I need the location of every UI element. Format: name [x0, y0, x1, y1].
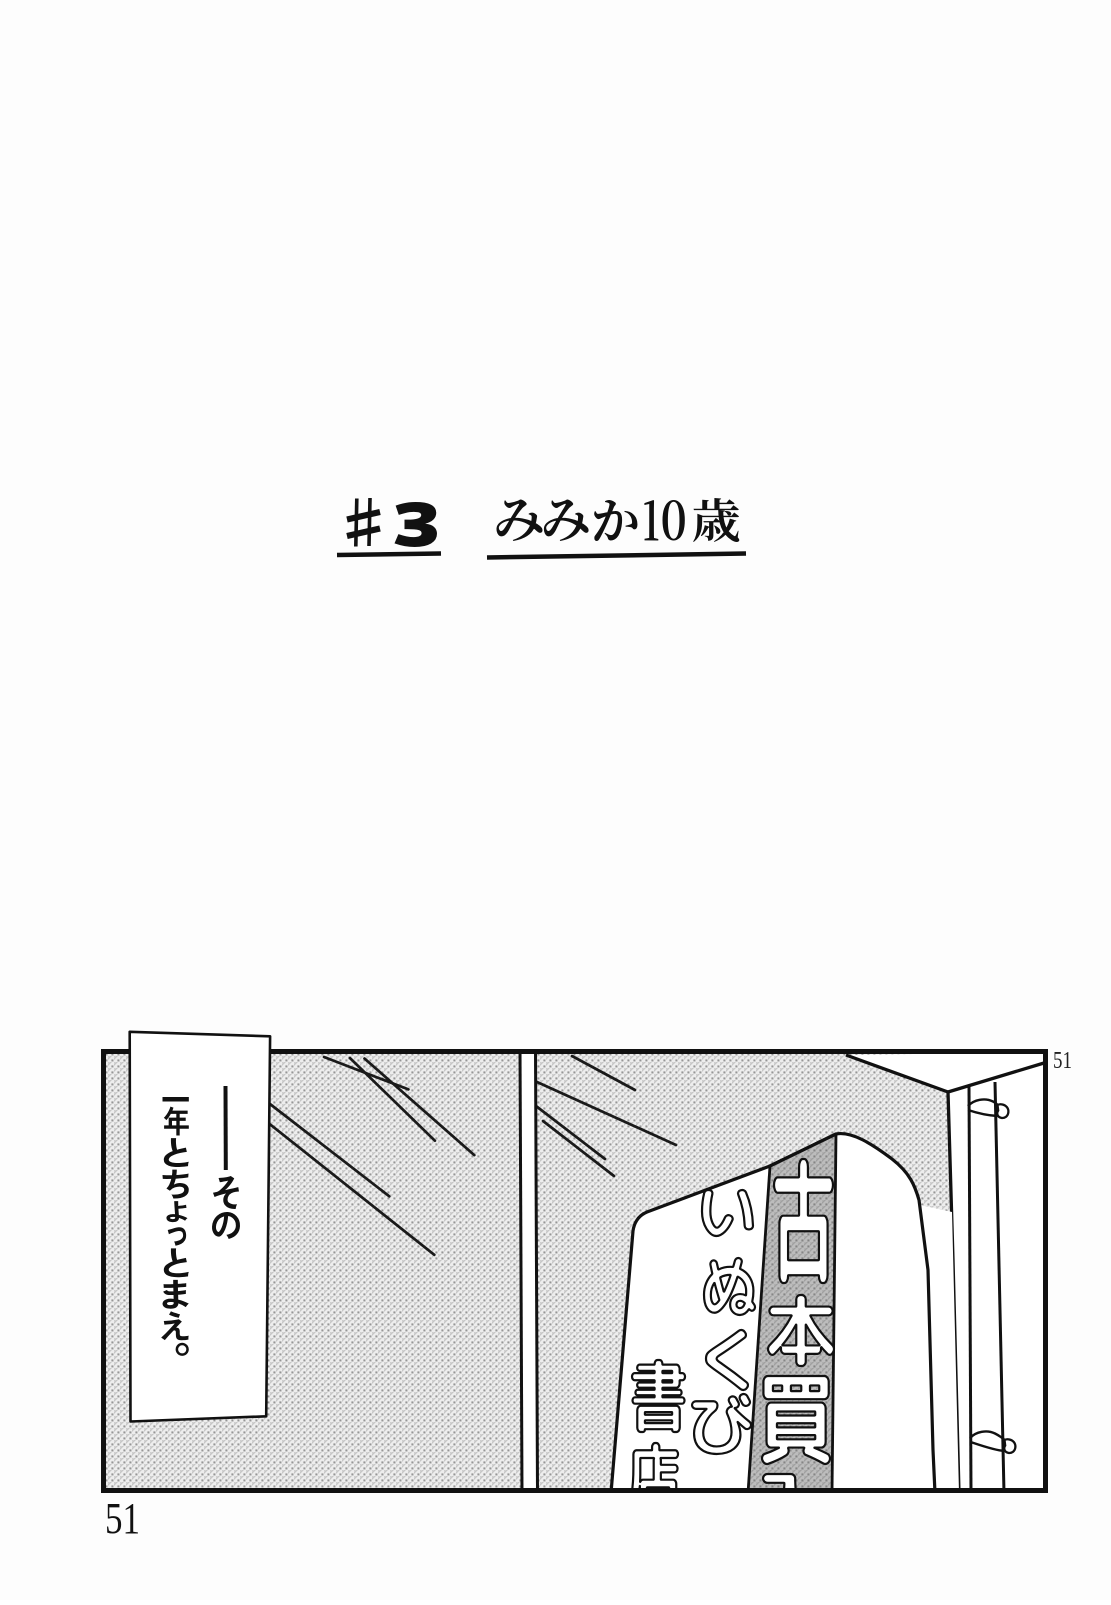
svg-text:51: 51 — [1053, 1048, 1072, 1074]
svg-text:51: 51 — [105, 1494, 140, 1543]
